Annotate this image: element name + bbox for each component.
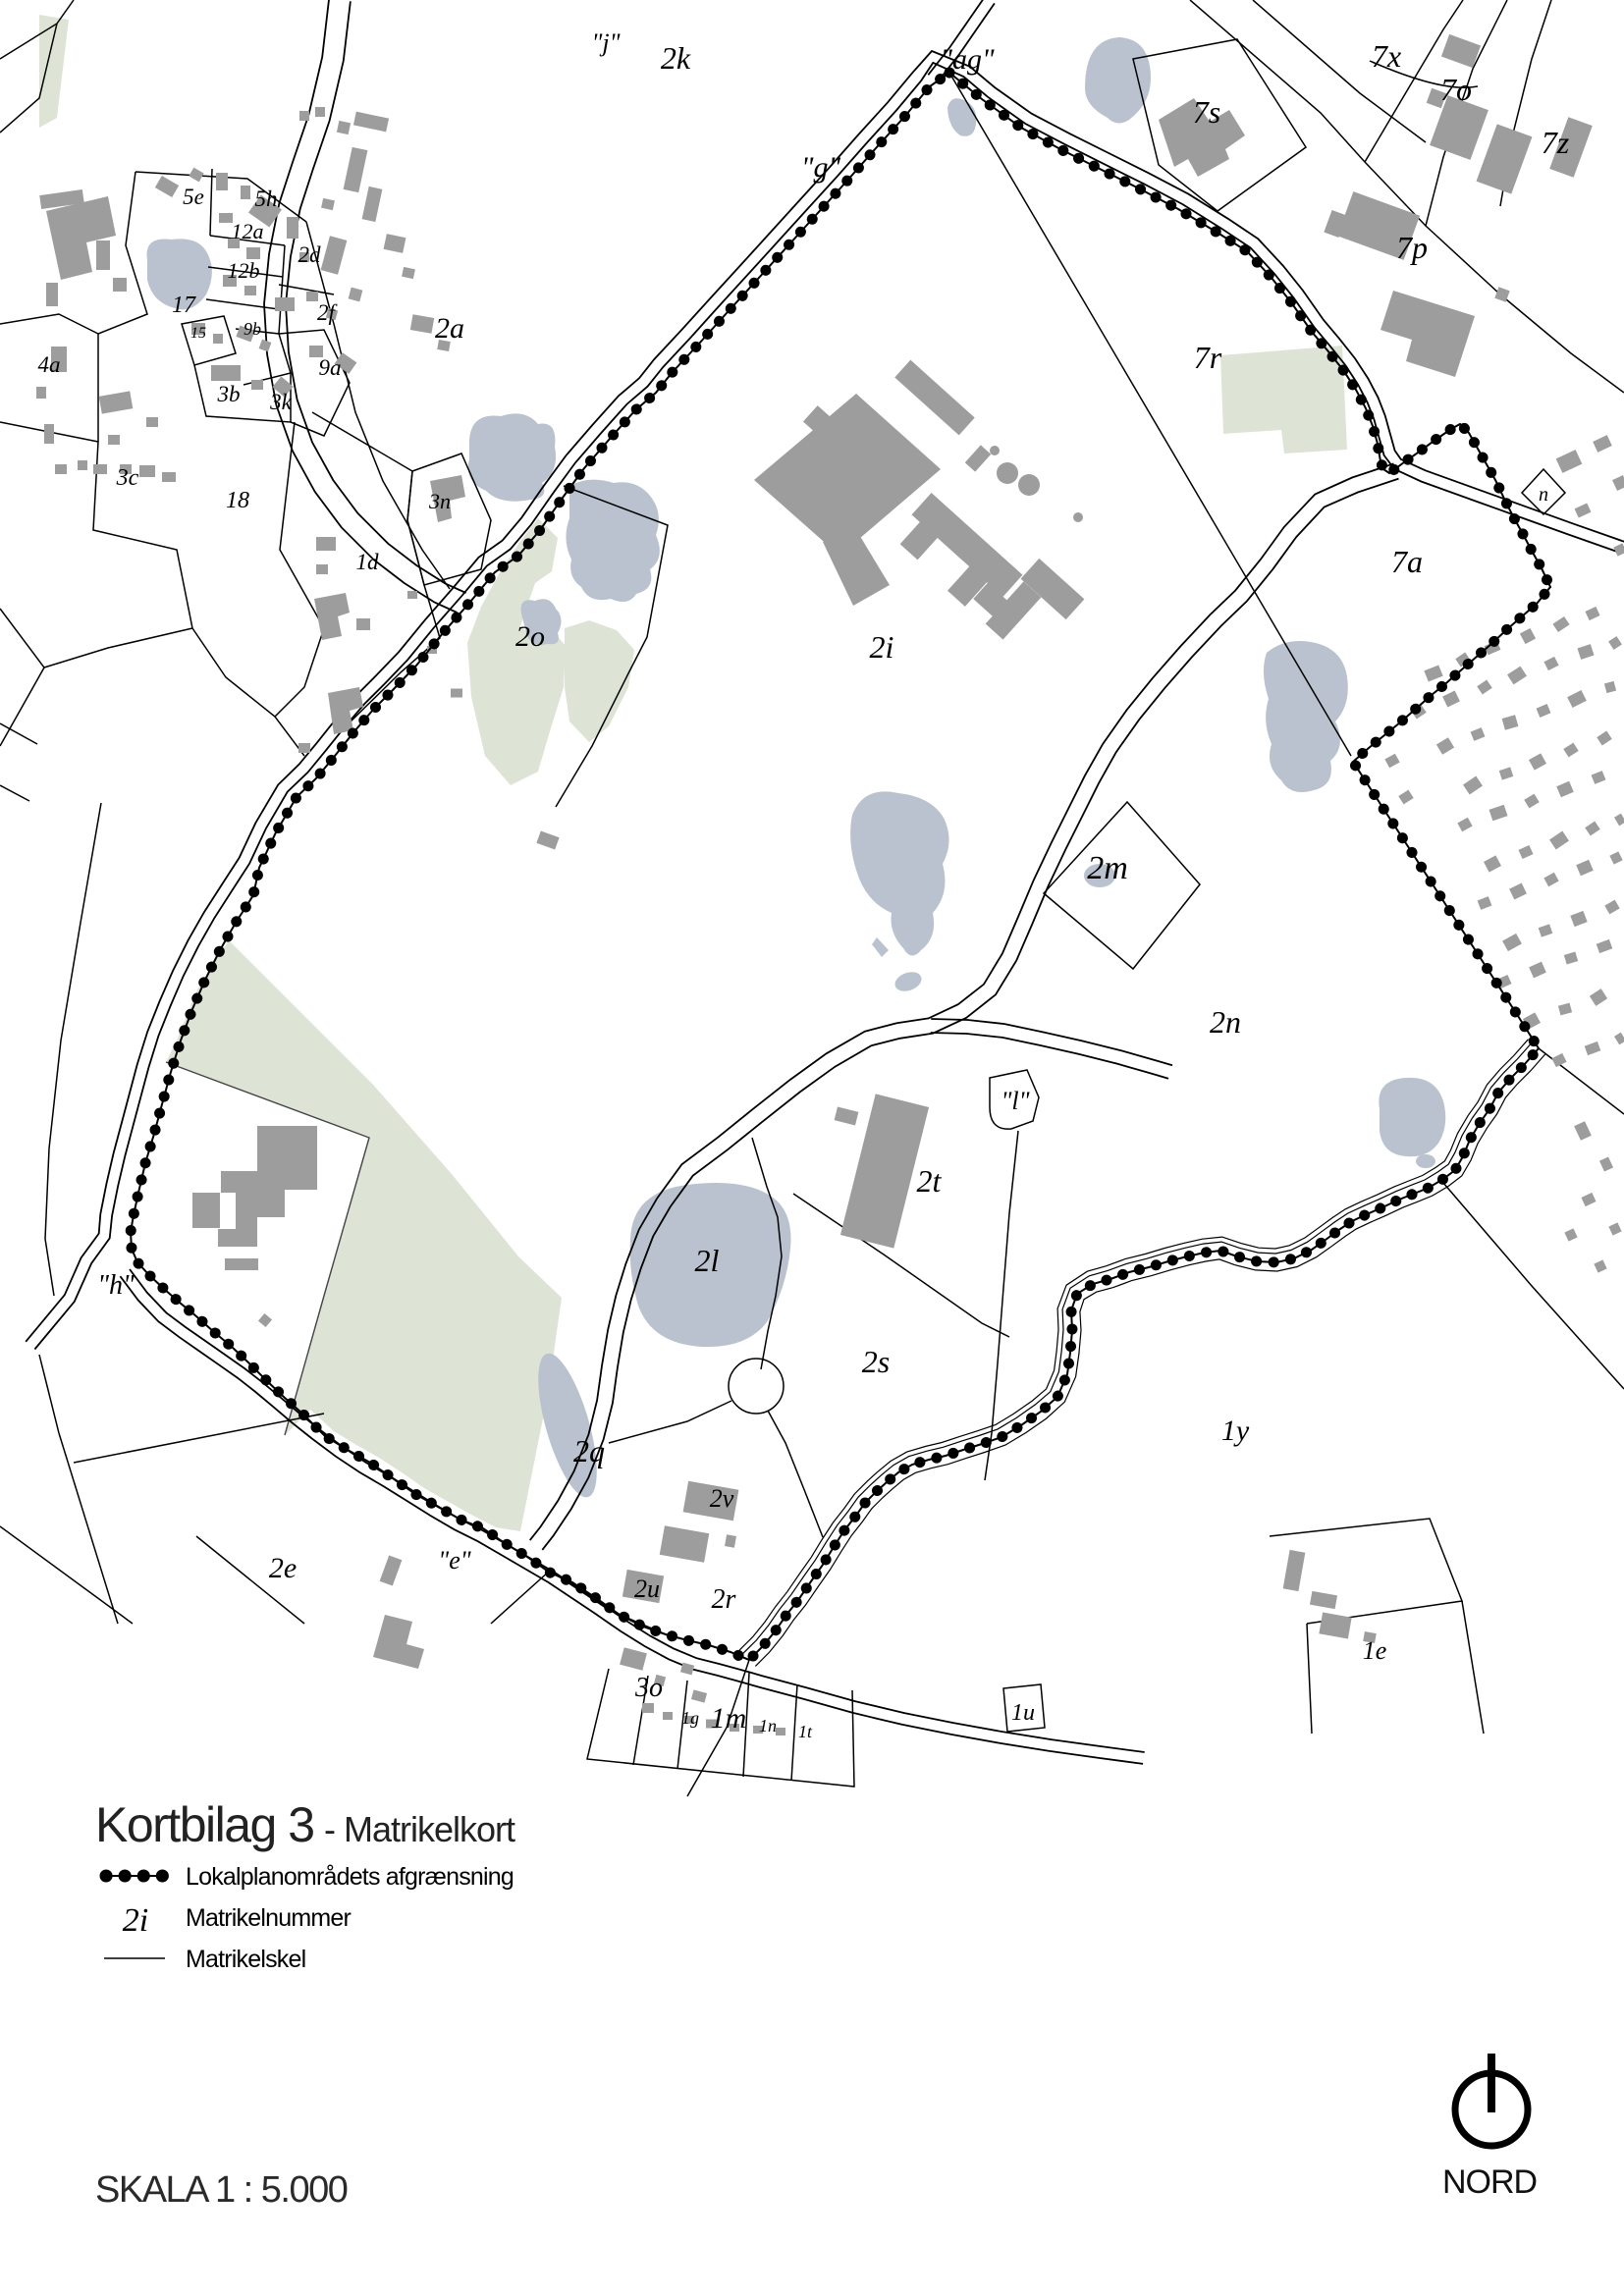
svg-text:3o: 3o bbox=[634, 1673, 663, 1703]
svg-text:2d: 2d bbox=[298, 242, 322, 267]
svg-text:SKALA 1 : 5.000: SKALA 1 : 5.000 bbox=[95, 2169, 348, 2211]
svg-text:15: 15 bbox=[190, 325, 206, 342]
svg-text:3k: 3k bbox=[269, 390, 293, 414]
svg-text:2n: 2n bbox=[1210, 1004, 1241, 1040]
svg-text:"l": "l" bbox=[1001, 1087, 1029, 1115]
svg-text:1d: 1d bbox=[356, 550, 380, 574]
svg-text:2u: 2u bbox=[634, 1575, 660, 1603]
svg-text:5e: 5e bbox=[183, 185, 204, 209]
svg-text:n: n bbox=[1539, 484, 1548, 506]
svg-text:Kortbilag 3: Kortbilag 3 bbox=[95, 1797, 314, 1852]
svg-text:2a: 2a bbox=[435, 312, 464, 345]
svg-text:2m: 2m bbox=[1087, 850, 1128, 886]
svg-text:"g": "g" bbox=[801, 151, 841, 184]
svg-text:2v: 2v bbox=[710, 1484, 734, 1513]
svg-text:1m: 1m bbox=[711, 1702, 747, 1735]
svg-text:1y: 1y bbox=[1221, 1415, 1250, 1447]
svg-text:1e: 1e bbox=[1363, 1636, 1387, 1665]
svg-text:2q: 2q bbox=[573, 1433, 605, 1468]
svg-text:7p: 7p bbox=[1396, 230, 1428, 265]
svg-text:12b: 12b bbox=[228, 258, 260, 283]
svg-text:7s: 7s bbox=[1193, 94, 1220, 130]
svg-text:"h": "h" bbox=[97, 1270, 135, 1301]
svg-text:7o: 7o bbox=[1440, 72, 1472, 107]
svg-text:1u: 1u bbox=[1011, 1700, 1035, 1726]
svg-text:3n: 3n bbox=[428, 489, 451, 513]
svg-text:1n: 1n bbox=[759, 1716, 777, 1735]
svg-text:2o: 2o bbox=[515, 620, 545, 653]
svg-text:9a: 9a bbox=[319, 355, 342, 380]
svg-text:18: 18 bbox=[226, 488, 249, 513]
svg-text:Matrikelskel: Matrikelskel bbox=[186, 1946, 305, 1973]
svg-text:17: 17 bbox=[172, 293, 196, 318]
svg-text:1t: 1t bbox=[798, 1722, 813, 1741]
svg-text:Lokalplanområdets afgrænsning: Lokalplanområdets afgrænsning bbox=[186, 1863, 514, 1891]
svg-text:5h: 5h bbox=[255, 187, 278, 211]
svg-text:NORD: NORD bbox=[1442, 2163, 1537, 2201]
svg-text:3b: 3b bbox=[217, 382, 241, 406]
svg-text:12a: 12a bbox=[232, 219, 264, 243]
svg-text:2l: 2l bbox=[695, 1243, 720, 1278]
svg-text:- Matrikelkort: - Matrikelkort bbox=[324, 1809, 515, 1849]
svg-text:2k: 2k bbox=[661, 40, 691, 76]
svg-text:9b: 9b bbox=[244, 319, 261, 339]
svg-text:7z: 7z bbox=[1542, 125, 1570, 160]
svg-text:2i: 2i bbox=[870, 629, 894, 665]
svg-text:4a: 4a bbox=[38, 352, 61, 377]
svg-text:"ag": "ag" bbox=[940, 43, 995, 76]
svg-text:"j": "j" bbox=[591, 28, 620, 57]
svg-text:2t: 2t bbox=[917, 1163, 943, 1199]
svg-text:2s: 2s bbox=[862, 1344, 890, 1379]
svg-text:"e": "e" bbox=[438, 1546, 470, 1575]
svg-text:Matrikelnummer: Matrikelnummer bbox=[186, 1904, 351, 1932]
svg-text:7x: 7x bbox=[1372, 38, 1401, 74]
svg-text:7r: 7r bbox=[1194, 340, 1222, 375]
svg-text:3c: 3c bbox=[116, 465, 139, 491]
svg-text:2r: 2r bbox=[712, 1584, 736, 1615]
svg-text:2e: 2e bbox=[269, 1552, 297, 1584]
svg-text:1g: 1g bbox=[681, 1708, 699, 1728]
svg-text:7a: 7a bbox=[1391, 544, 1423, 579]
svg-text:2i: 2i bbox=[123, 1902, 148, 1939]
